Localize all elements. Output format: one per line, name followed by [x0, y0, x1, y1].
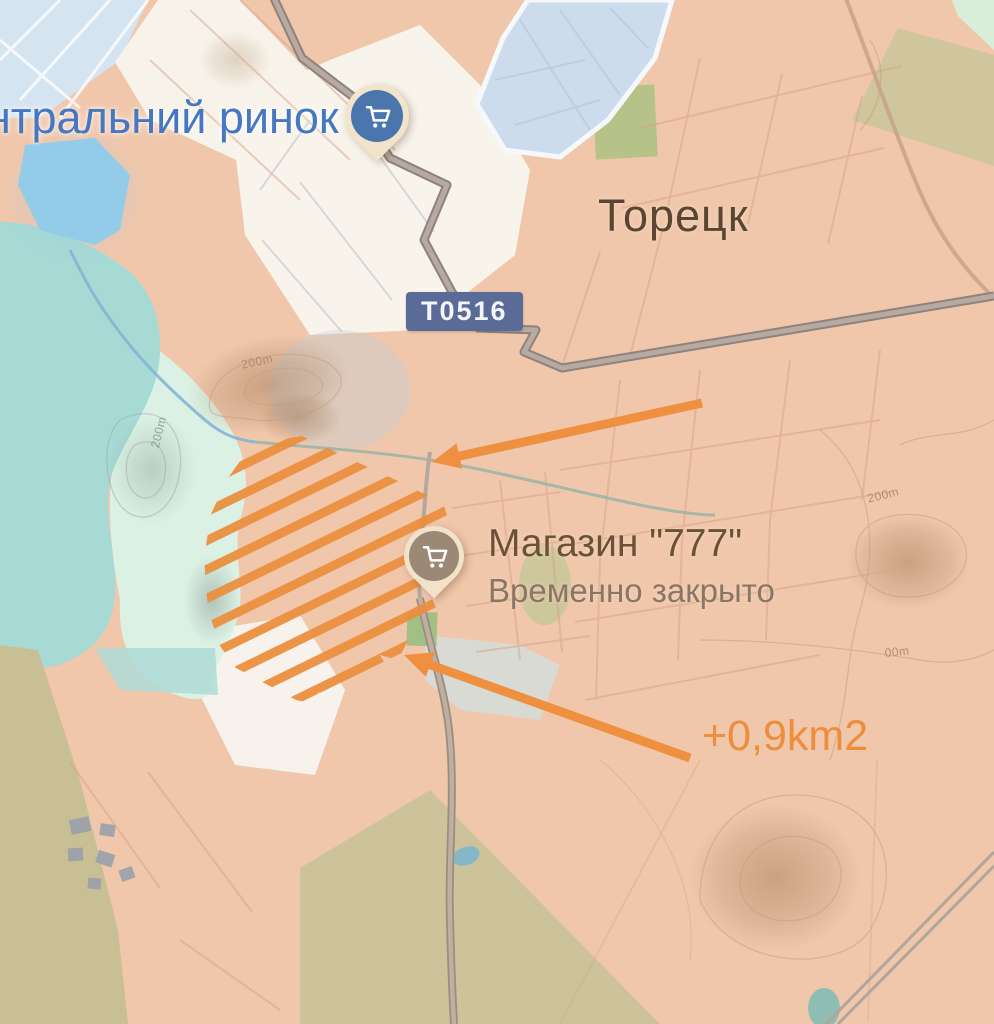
pin-shape: [392, 514, 477, 599]
city-label: Торецк: [598, 190, 749, 242]
contour-label: 00m: [884, 643, 910, 660]
market-pin[interactable]: [345, 84, 415, 172]
store-pin[interactable]: [404, 526, 474, 614]
store-name-label[interactable]: Магазин "777": [488, 522, 742, 566]
advance-arrow-top: [432, 403, 702, 469]
map-canvas[interactable]: нтральний ринок Торецк Т0516 Магазин "77…: [0, 0, 994, 1024]
map-layers: [0, 0, 994, 1024]
shopping-cart-icon: [419, 541, 449, 571]
market-label[interactable]: нтральний ринок: [0, 92, 339, 144]
pond: [808, 988, 840, 1024]
shopping-cart-icon: [362, 101, 392, 131]
store-status-label: Временно закрыто: [488, 572, 775, 610]
olive-field-ne: [852, 28, 994, 166]
olive-field-s: [300, 790, 660, 1024]
area-gain-label: +0,9km2: [702, 712, 868, 761]
pin-shape: [332, 71, 423, 162]
road-badge: Т0516: [406, 292, 523, 331]
